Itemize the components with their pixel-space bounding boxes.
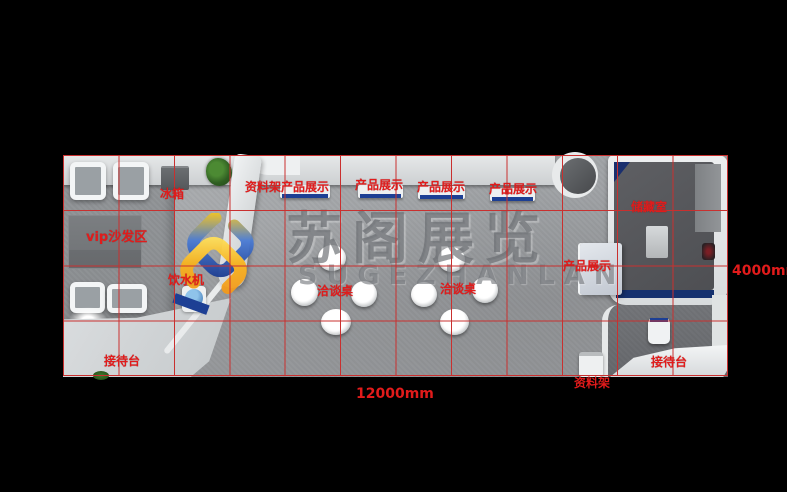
round-chair bbox=[321, 309, 351, 335]
product-display-stand bbox=[418, 186, 465, 199]
storage-blue-strip bbox=[616, 290, 714, 298]
product-display-stand bbox=[358, 185, 403, 198]
small-plant bbox=[93, 371, 109, 380]
vip-sofa bbox=[113, 162, 149, 200]
area-label: 资料架 bbox=[574, 377, 610, 389]
stand-blue-strip bbox=[420, 195, 463, 199]
storage-cabinet bbox=[695, 164, 721, 232]
vip-sofa bbox=[107, 284, 147, 313]
dimension-width-label: 12000mm bbox=[356, 386, 434, 402]
product-display-stand bbox=[280, 185, 330, 198]
office-stool-strip bbox=[650, 318, 668, 322]
stand-blue-strip bbox=[492, 197, 533, 201]
sugezhanlan-logo-icon bbox=[166, 213, 268, 301]
product-display-stand bbox=[490, 188, 535, 201]
storage-table bbox=[646, 226, 668, 258]
fridge bbox=[161, 166, 189, 190]
stand-blue-strip bbox=[282, 194, 328, 198]
curved-wall-end-core bbox=[560, 158, 596, 194]
potted-plant bbox=[206, 158, 232, 186]
round-chair bbox=[440, 309, 469, 335]
dimension-height-label: 4000mm bbox=[732, 263, 787, 279]
literature-rack bbox=[579, 352, 603, 377]
vip-sofa bbox=[70, 162, 106, 200]
watermark-english: SUGEZHANLAN bbox=[298, 262, 625, 289]
vip-rug bbox=[68, 215, 142, 269]
storage-chair bbox=[702, 243, 715, 260]
booth-plan-rendering: 苏阁展览 SUGEZHANLAN 冰箱资料架产品展示产品展示产品展示产品展示储藏… bbox=[0, 0, 787, 492]
stand-blue-strip bbox=[360, 194, 401, 198]
